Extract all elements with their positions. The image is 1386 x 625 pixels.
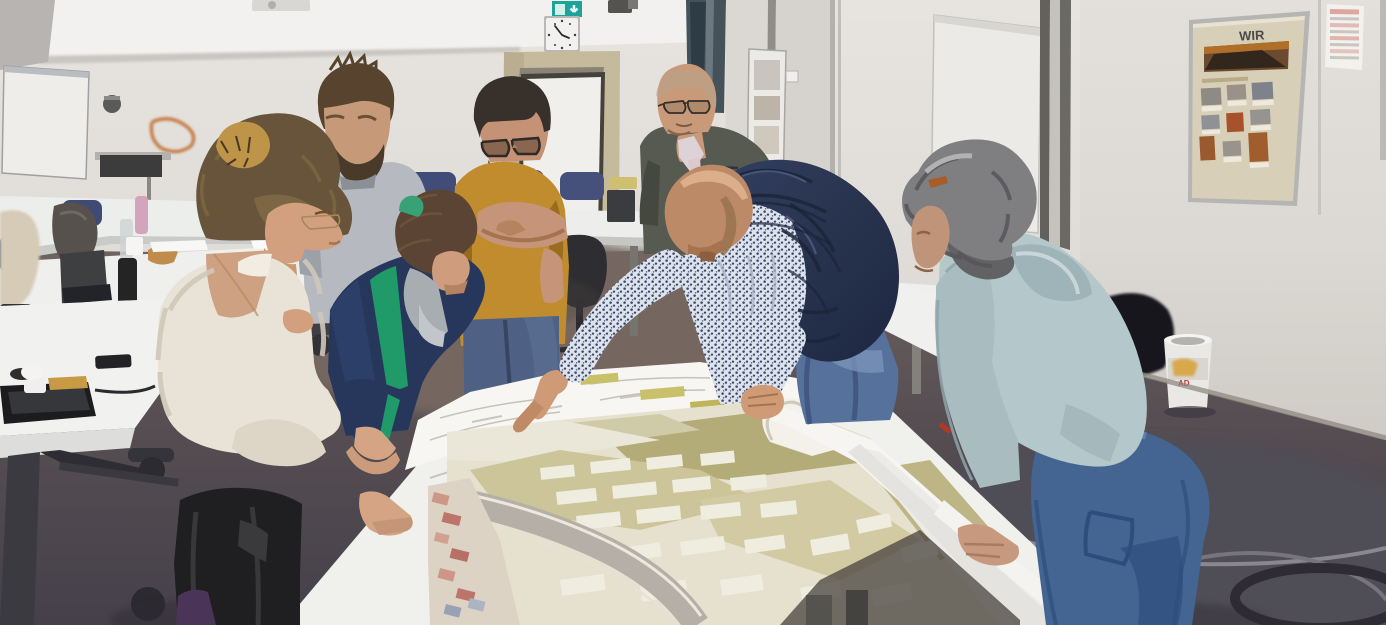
svg-text:WIR: WIR xyxy=(1239,27,1266,43)
